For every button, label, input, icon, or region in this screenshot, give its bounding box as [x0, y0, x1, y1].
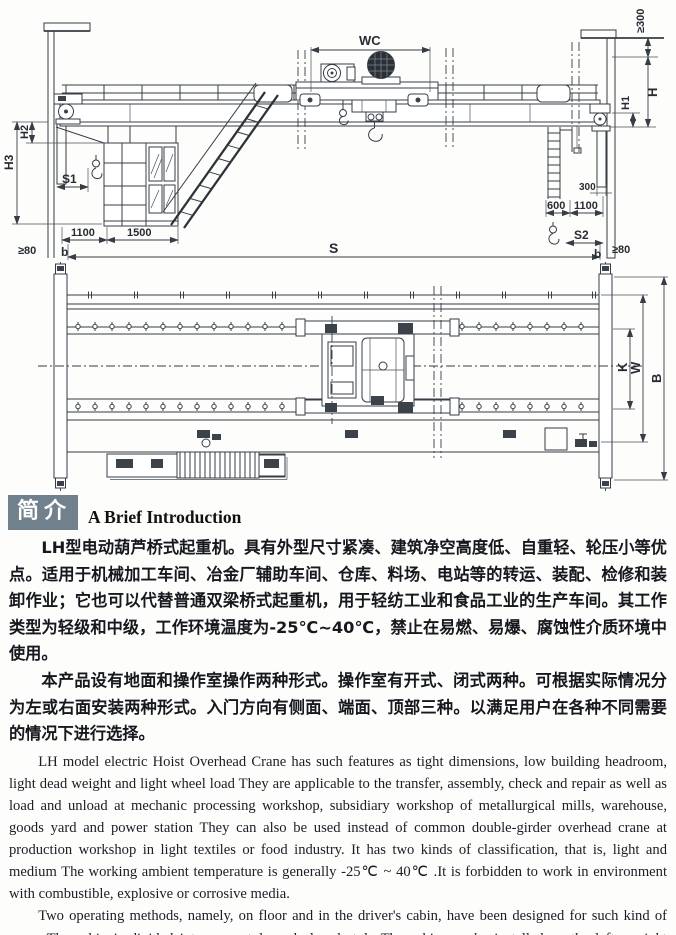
dim-label-gap-left: ≥80 [18, 245, 36, 257]
plan-view-drawing: K W B [0, 262, 676, 492]
dim-label-300: 300 [579, 182, 596, 193]
operator-cabin [104, 143, 178, 226]
travel-motor-icon [321, 64, 355, 82]
dim-label-1100-right: 1100 [574, 200, 598, 212]
dim-span: S [68, 240, 600, 260]
dim-label-600: 600 [547, 200, 565, 212]
dim-label-s2: S2 [574, 228, 589, 242]
dim-label-b-right: b [594, 247, 601, 261]
end-ladder [548, 126, 581, 199]
catalog-page: WC H3 H2 S1 1100 1500 ≥80 b S [0, 0, 676, 935]
hoist-motor-fan-icon [362, 52, 400, 85]
dim-label-h: H [645, 88, 660, 97]
right-dimensions: 300 600 1100 S2 b ≥80 ≥300 H H1 [546, 9, 660, 261]
dim-label-b: B [649, 374, 664, 383]
section-header: 简介 A Brief Introduction [8, 495, 676, 530]
drive-unit-left [197, 430, 221, 447]
dim-label-s1: S1 [62, 172, 77, 186]
plan-section-lines [434, 286, 441, 458]
end-carriage-right [599, 262, 612, 491]
right-wall [581, 30, 664, 258]
dim-label-wc: WC [359, 33, 381, 48]
hook-icon [366, 112, 383, 141]
zh-paragraph-2: 本产品设有地面和操作室操作两种形式。操作室有开式、闭式两种。可根据实际情况分为左… [9, 668, 667, 748]
section-badge-zh: 简介 [8, 495, 78, 530]
dim-label-1500: 1500 [127, 227, 151, 239]
dim-label-clearance-top: ≥300 [635, 9, 647, 33]
dim-label-h1: H1 [620, 96, 632, 110]
elevation-view-drawing: WC H3 H2 S1 1100 1500 ≥80 b S [0, 0, 676, 262]
dim-label-1100-left: 1100 [71, 227, 95, 239]
hook-approach-icon-right [549, 222, 559, 244]
section-title-en: A Brief Introduction [88, 507, 241, 528]
english-text-block: LH model electric Hoist Overhead Crane h… [0, 751, 676, 935]
drive-unit-right [575, 434, 597, 447]
chinese-text-block: LH型电动葫芦桥式起重机。具有外型尺寸紧凑、建筑净空高度低、自重轻、轮压小等优点… [0, 535, 676, 748]
hoist-trolley [296, 52, 438, 142]
end-carriage-left [54, 262, 67, 491]
dim-label-w: W [628, 361, 643, 374]
zh-paragraph-1: LH型电动葫芦桥式起重机。具有外型尺寸紧凑、建筑净空高度低、自重轻、轮压小等优点… [9, 535, 667, 668]
section-badge-zh-label: 简介 [17, 499, 71, 524]
dim-label-h3: H3 [2, 154, 16, 170]
dim-label-b-left: b [61, 245, 68, 259]
en-paragraph-2: Two operating methods, namely, on floor … [9, 905, 667, 935]
left-wall [44, 23, 90, 258]
bridge-girder [60, 100, 600, 126]
en-paragraph-1: LH model electric Hoist Overhead Crane h… [9, 751, 667, 906]
dim-label-h2: H2 [19, 125, 31, 139]
cabin-hangers [56, 126, 176, 143]
dim-label-span-s: S [329, 240, 338, 256]
dim-label-gap-right: ≥80 [612, 244, 630, 256]
plan-walkway [67, 428, 599, 452]
plan-railing [67, 292, 599, 299]
access-platform [107, 452, 287, 480]
hook-approach-icon-left [92, 155, 102, 179]
